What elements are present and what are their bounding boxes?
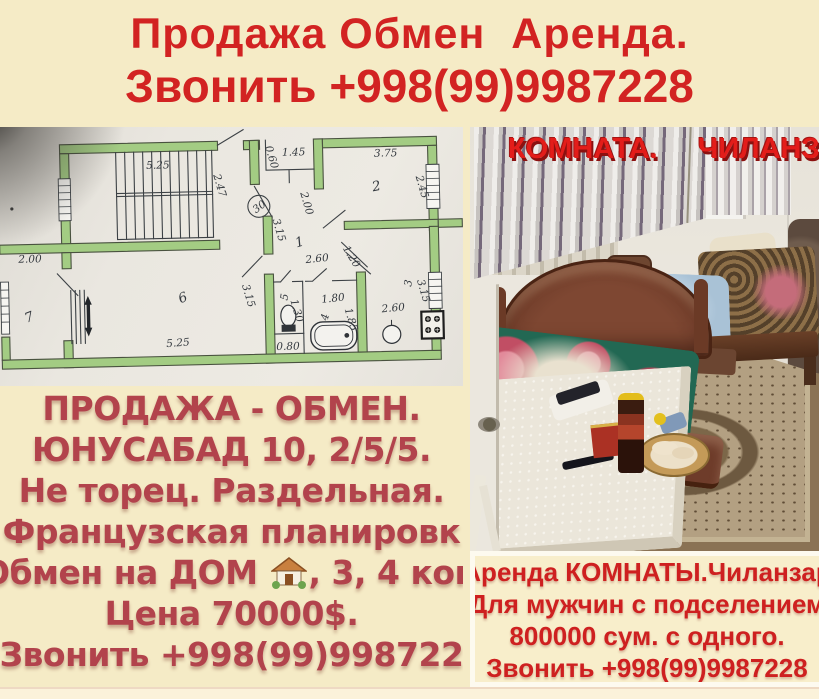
left-ad-line-1-text: ПРОДАЖА - ОБМЕН. (42, 388, 420, 429)
right-ad-line-4-text: Звонить +998(99)9987228 (486, 652, 807, 684)
right-ad-line-1: Аренда КОМНАТЫ.Чиланзар (475, 556, 819, 588)
floorplan-drawing: 5.25 2.47 1.45 0.60 2.00 30 3.75 2 2.45 … (0, 127, 463, 386)
stove-icon (421, 311, 444, 338)
dim-room6-width: 5.25 (166, 336, 191, 350)
dim-room2-width: 3.75 (374, 147, 398, 160)
room-photo: КОМНАТА. ЧИЛАНЗА (470, 127, 819, 551)
left-ad-line-5-text-b: , 3, 4 ком (309, 552, 463, 593)
left-ad-line-3-text: Не торец. Раздельная. (19, 470, 445, 511)
dim-hall-width: 2.60 (304, 252, 330, 266)
photo-caption-room: КОМНАТА. (508, 133, 658, 166)
right-ad-line-1-text: Аренда КОМНАТЫ.Чиланзар (470, 556, 819, 588)
left-bed-post-right (694, 279, 708, 353)
left-ad-line-7: Звонить +998(99)998722 (0, 634, 463, 675)
dim-niche-width: 1.45 (282, 146, 306, 159)
right-ad-panel: Аренда КОМНАТЫ.Чиланзар Для мужчин с под… (470, 551, 819, 687)
dim-left-width: 2.00 (17, 253, 42, 266)
footer-strip (0, 687, 819, 699)
bath-number: 4 (318, 312, 331, 322)
photo-caption-district: ЧИЛАНЗА (698, 133, 819, 166)
bottle (618, 393, 644, 473)
dim-bath-width: 1.80 (321, 291, 346, 306)
ad-banner: Продажа Обмен Аренда. Звонить +998(99)99… (0, 0, 819, 127)
right-ad-line-2-text: Для мужчин с подселением (470, 588, 819, 620)
room2-number: 2 (370, 178, 383, 196)
dim-niche-height: 2.00 (297, 190, 315, 217)
left-ad-line-2: ЮНУСАБАД 10, 2/5/5. (0, 429, 463, 470)
paper-dot (10, 207, 13, 210)
room6-number: 6 (176, 289, 190, 307)
left-ad-line-7-text: Звонить +998(99)998722 (0, 634, 463, 675)
left-ad-line-6-text: Цена 70000$. (105, 593, 359, 634)
left-ad-line-3: Не торец. Раздельная. (0, 470, 463, 511)
right-ad-line-3: 800000 сум. с одного. (475, 620, 819, 652)
ad-collage: Продажа Обмен Аренда. Звонить +998(99)99… (0, 0, 819, 699)
dim-hall-diagonal: 1.20 (340, 244, 363, 270)
right-bed-flower-pattern (752, 265, 810, 319)
right-ad-line-2: Для мужчин с подселением (475, 588, 819, 620)
dim-kitchen-width: 2.60 (380, 301, 406, 315)
banner-line-1: Продажа Обмен Аренда. (0, 9, 819, 59)
left-ad-line-2-text: ЮНУСАБАД 10, 2/5/5. (32, 429, 431, 470)
house-icon (271, 557, 307, 589)
floorplan-image: 5.25 2.47 1.45 0.60 2.00 30 3.75 2 2.45 … (0, 127, 463, 386)
dim-stairs-length: 5.25 (146, 159, 170, 172)
door-swing-label: 30 (251, 198, 269, 216)
right-ad-line-4: Звонить +998(99)9987228 (475, 652, 819, 684)
sink-icon (382, 320, 401, 343)
bread-piece (672, 447, 694, 459)
room7-number: 7 (22, 308, 36, 326)
photo-caption: КОМНАТА. ЧИЛАНЗА (470, 133, 819, 173)
left-ad-line-5-text-a: Обмен на ДОМ (0, 552, 269, 593)
hall-number: 1 (293, 234, 306, 252)
door-handle (483, 418, 496, 431)
left-ad-line-4-text: Французская планировк (3, 511, 461, 552)
left-ad-line-6: Цена 70000$. (0, 593, 463, 634)
arrow-marker (85, 297, 92, 335)
bottle-cap (654, 413, 666, 425)
left-ad-text: ПРОДАЖА - ОБМЕН. ЮНУСАБАД 10, 2/5/5. Не … (0, 388, 463, 687)
banner-phone: Звонить +998(99)9987228 (0, 59, 819, 113)
left-ad-line-5: Обмен на ДОМ , 3, 4 ком (0, 552, 463, 593)
left-ad-line-1: ПРОДАЖА - ОБМЕН. (0, 388, 463, 429)
right-bed-leg (804, 357, 816, 385)
dim-wc-width: 0.80 (276, 340, 300, 353)
left-ad-line-4: Французская планировк (0, 511, 463, 552)
right-ad-line-3-text: 800000 сум. с одного. (509, 620, 784, 652)
kitchen-number: 3 (402, 279, 415, 288)
dim-room6-depth: 3.15 (239, 283, 257, 309)
dim-niche-depth: 0.60 (262, 144, 280, 170)
